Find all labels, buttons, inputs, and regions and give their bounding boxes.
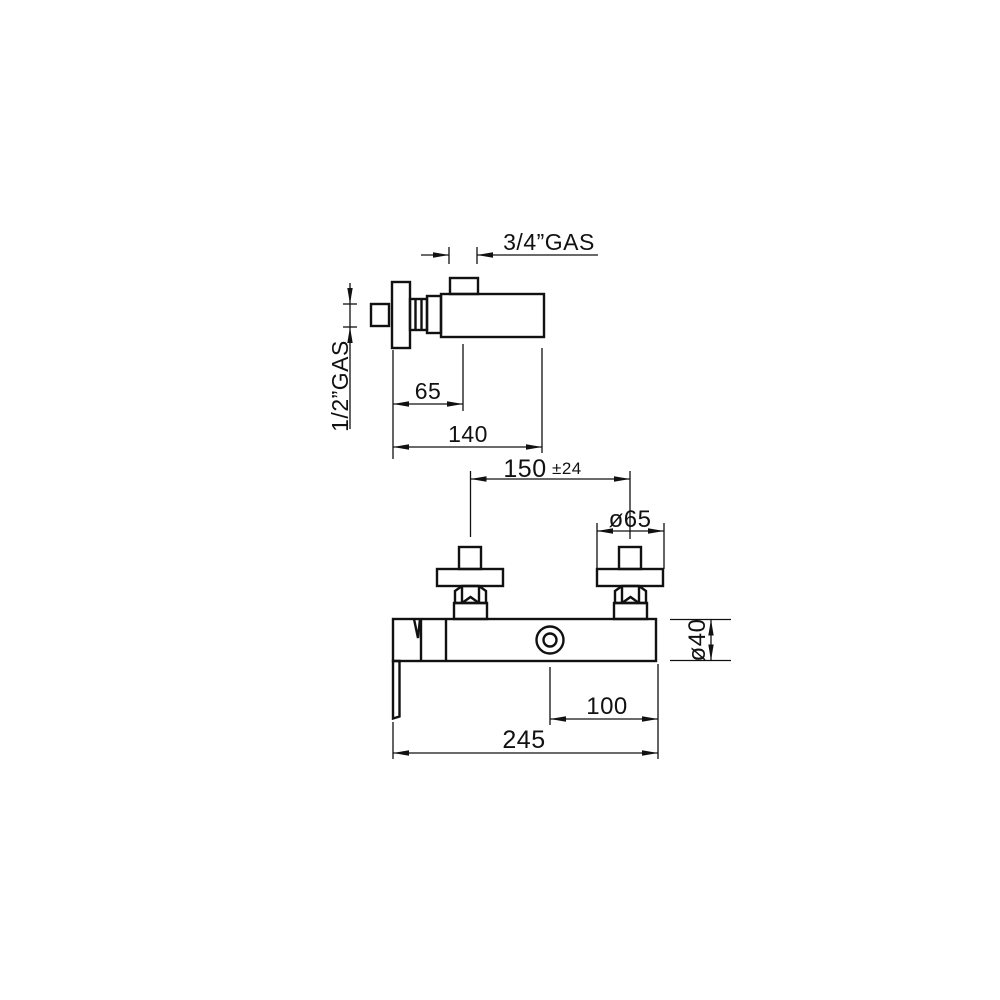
dim-245-value: 245	[502, 726, 545, 754]
arrowhead	[642, 750, 658, 755]
arrowhead	[433, 252, 449, 257]
dim-outlet-thread: 3/4”GAS	[421, 229, 598, 264]
arrowhead	[642, 716, 658, 721]
left-wall-connector	[437, 547, 503, 619]
arrowhead	[393, 750, 409, 755]
cover-flange	[597, 569, 663, 586]
technical-drawing-canvas: 3/4”GAS 1/2”GAS 65 140	[0, 0, 1000, 1000]
cover-flange	[437, 569, 503, 586]
arrowhead	[526, 444, 542, 449]
arrowhead	[347, 288, 352, 304]
dim-150-tolerance: ±24	[552, 459, 582, 478]
front-view: 150 ±24 ø65 ø40 100	[393, 455, 731, 759]
diverter-knob-inner	[544, 634, 557, 647]
mounting-nut	[410, 299, 427, 330]
dim-body-diameter: ø40	[670, 619, 731, 662]
valve-body-side	[441, 294, 544, 337]
inlet-thread-label: 1/2”GAS	[327, 340, 353, 432]
connector-collar	[614, 603, 647, 619]
arrowhead	[614, 476, 630, 481]
outlet-port	[450, 278, 478, 294]
inlet-square	[619, 547, 641, 569]
inlet-square	[459, 547, 481, 569]
shower-mixer-dimensional-drawing: 3/4”GAS 1/2”GAS 65 140	[0, 0, 1000, 1000]
connector-collar	[454, 603, 487, 619]
body-collar	[427, 296, 441, 333]
diverter-knob-outer	[537, 627, 564, 654]
side-view: 3/4”GAS 1/2”GAS 65 140	[327, 229, 598, 459]
dim-65-value: 65	[415, 378, 442, 404]
arrowhead	[393, 444, 409, 449]
dim-inlet-thread: 1/2”GAS	[327, 283, 357, 432]
arrowhead	[550, 716, 566, 721]
hex-nut	[455, 586, 486, 603]
inlet-stub	[371, 304, 389, 326]
right-wall-connector	[597, 547, 663, 619]
dim-overall-width: 245	[393, 722, 658, 759]
outlet-thread-label: 3/4”GAS	[503, 229, 595, 255]
arrowhead	[471, 476, 487, 481]
arrowhead	[393, 401, 409, 406]
dim-65dia-value: ø65	[609, 506, 652, 533]
dim-40dia-value: ø40	[684, 619, 711, 662]
arrowhead	[447, 401, 463, 406]
dim-inlet-centers: 150 ±24	[471, 455, 631, 539]
mixer-body	[393, 619, 656, 661]
dim-100-value: 100	[586, 693, 628, 720]
dim-150-value: 150	[503, 455, 546, 483]
lever-notch	[414, 619, 420, 638]
hex-nut	[615, 586, 646, 603]
wall-flange	[392, 282, 410, 348]
dim-center-to-end: 100	[550, 664, 658, 759]
dim-140-value: 140	[448, 421, 488, 447]
handle-lever	[393, 661, 400, 719]
